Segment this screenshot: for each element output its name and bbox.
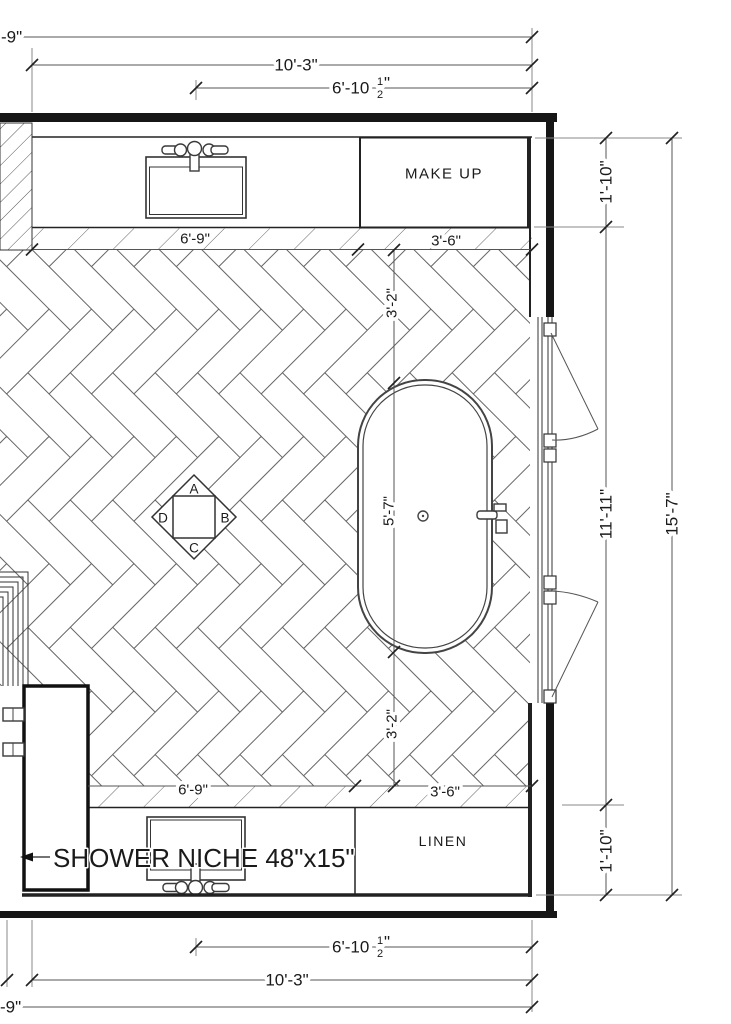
- svg-text:1: 1: [377, 935, 383, 947]
- bathroom-floor-plan: MAKE UP LINEN: [0, 0, 731, 1024]
- dim-room-width-top: 10'-3": [274, 56, 317, 75]
- makeup-label: MAKE UP: [405, 166, 483, 183]
- wall-right-lower: [546, 703, 554, 918]
- dim-floor-span: 11'-11": [597, 489, 616, 539]
- wall-right-upper: [546, 113, 554, 317]
- dim-clearance-top: 3'-2": [384, 288, 401, 318]
- wall-block-left: [0, 123, 32, 250]
- dim-makeup-run-top: 3'-6": [431, 233, 461, 250]
- linen-label: LINEN: [419, 833, 468, 849]
- faucet-handle-right-icon: [212, 884, 229, 892]
- marker-letter-d: D: [158, 511, 168, 526]
- dim-counter-depth-bottom: 1'-10": [597, 829, 616, 872]
- faucet-icon: [189, 881, 203, 895]
- dim-counter-depth-top: 1'-10": [597, 160, 616, 203]
- dim-drain-offset-bottom: 6'-10 1 2 ": [332, 933, 390, 961]
- dim-overall-depth: 15'-7": [663, 492, 682, 535]
- window-mullion: [544, 323, 556, 336]
- window-mullion: [544, 576, 556, 589]
- wall-bottom: [0, 911, 557, 918]
- tile-border-strip-bottom: [88, 786, 532, 807]
- wall-top: [0, 113, 557, 122]
- marker-letter-a: A: [189, 482, 198, 497]
- marker-letter-b: B: [220, 511, 229, 526]
- faucet-icon: [188, 142, 202, 156]
- dim-overall-bottom: -9": [0, 998, 21, 1017]
- window-mullion: [544, 591, 556, 604]
- makeup-counter: [360, 138, 528, 228]
- dim-vanity-run-bottom: 6'-9": [178, 782, 208, 799]
- dim-drain-offset-top: 6'-10 1 2 ": [332, 74, 390, 102]
- dim-overall-top: -9": [1, 28, 22, 47]
- svg-text:6'-10: 6'-10: [332, 79, 369, 98]
- marker-letter-c: C: [189, 541, 199, 556]
- shower-niche-callout: SHOWER NICHE 48"x15": [20, 843, 355, 873]
- shower-niche-label: SHOWER NICHE 48"x15": [53, 843, 355, 873]
- floor-plan-svg: MAKE UP LINEN: [0, 0, 731, 1024]
- dim-makeup-run-bottom: 3'-6": [430, 784, 460, 801]
- faucet-handle-right-icon: [211, 146, 228, 154]
- dim-vanity-run-top: 6'-9": [180, 231, 210, 248]
- svg-text:2: 2: [377, 948, 383, 960]
- dim-room-width-bottom: 10'-3": [265, 971, 308, 990]
- svg-text:1: 1: [377, 76, 383, 88]
- window-mullion: [544, 449, 556, 462]
- faucet-spout-icon: [190, 154, 199, 171]
- svg-text:6'-10: 6'-10: [332, 938, 369, 957]
- svg-text:2: 2: [377, 89, 383, 101]
- svg-text:": ": [384, 933, 390, 952]
- dim-clearance-bottom: 3'-2": [384, 709, 401, 739]
- svg-text:": ": [384, 74, 390, 93]
- dim-tub-length: 5'-7": [381, 496, 398, 526]
